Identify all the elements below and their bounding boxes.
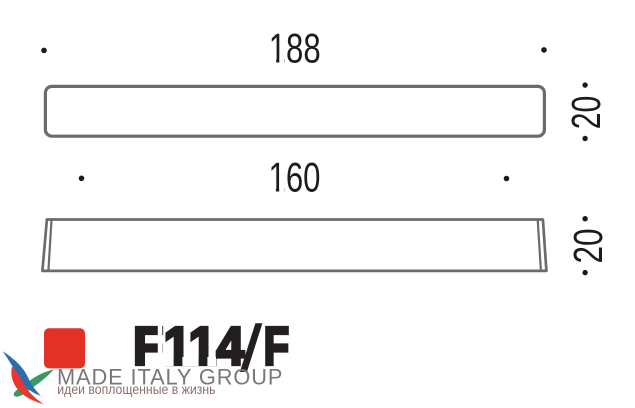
svg-text:188: 188 — [269, 25, 321, 71]
svg-text:идеи воплощенные в жизнь: идеи воплощенные в жизнь — [57, 381, 216, 397]
svg-text:20: 20 — [565, 228, 611, 263]
svg-text:20: 20 — [564, 96, 609, 130]
svg-text:160: 160 — [269, 154, 321, 200]
